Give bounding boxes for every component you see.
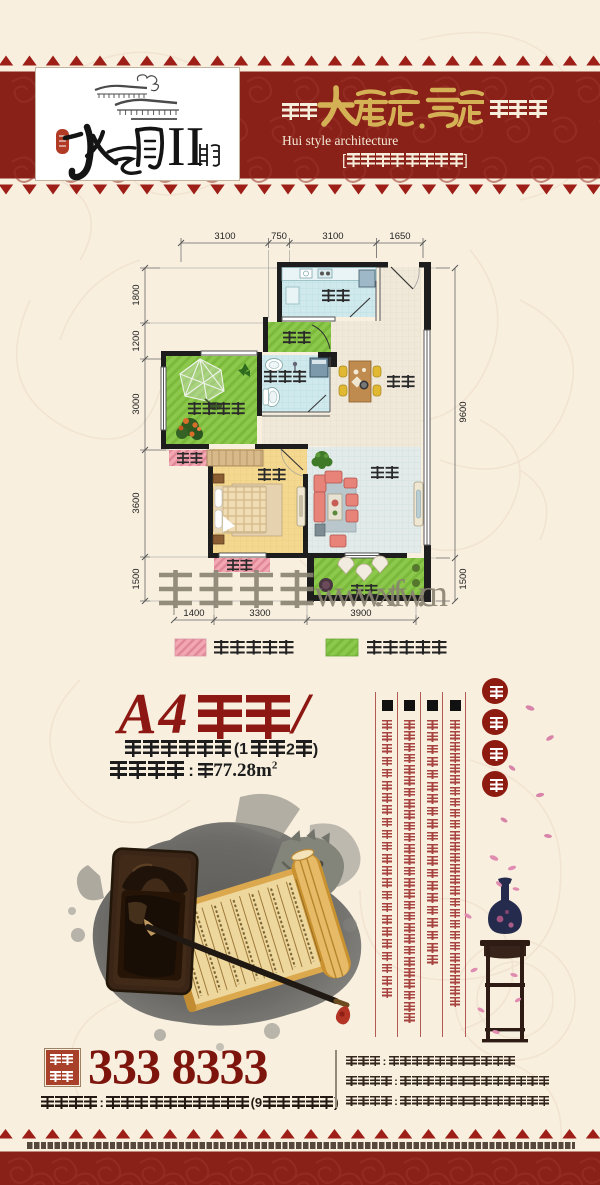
- svg-text:www.xtfw.cn: www.xtfw.cn: [314, 573, 448, 615]
